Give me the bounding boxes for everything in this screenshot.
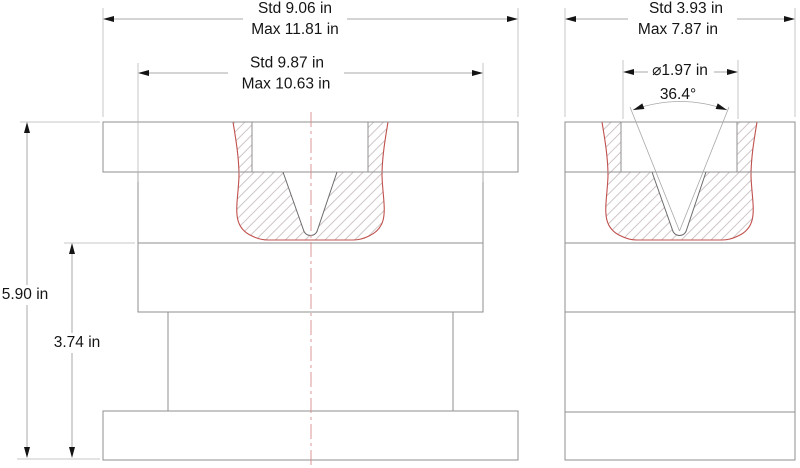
front-die-holder-block bbox=[138, 172, 483, 243]
dim-text-die-opening: ⌀1.97 in bbox=[652, 62, 708, 79]
front-view bbox=[103, 112, 518, 466]
dim-text-side-overall-std: Std 3.93 in bbox=[649, 0, 723, 17]
front-base-block bbox=[103, 411, 518, 460]
arrowhead bbox=[716, 103, 727, 110]
arrowhead bbox=[633, 103, 644, 110]
front-middle-block bbox=[138, 243, 483, 312]
arrowhead bbox=[69, 243, 75, 254]
dim-text-front-overall-std: Std 9.06 in bbox=[258, 0, 332, 17]
dim-text-upper-body-height: 3.74 in bbox=[54, 334, 101, 351]
arrowhead bbox=[784, 16, 795, 22]
dim-text-front-body-std: Std 9.87 in bbox=[250, 55, 324, 72]
arrowhead bbox=[138, 70, 149, 76]
drawing-canvas: Std 9.06 in Max 11.81 in Std 9.87 in Max… bbox=[0, 0, 800, 468]
side-view bbox=[565, 122, 795, 460]
arrowhead bbox=[727, 69, 738, 75]
front-neck-block bbox=[168, 312, 453, 411]
dim-text-vee-angle: 36.4° bbox=[660, 86, 696, 103]
dim-text-overall-height: 5.90 in bbox=[2, 286, 49, 303]
arrowhead bbox=[472, 70, 483, 76]
arrowhead bbox=[103, 16, 114, 22]
dim-text-front-body-max: Max 10.63 in bbox=[242, 76, 331, 93]
arrowhead bbox=[24, 122, 30, 133]
arrowhead bbox=[507, 16, 518, 22]
side-body bbox=[565, 122, 795, 460]
front-die-section-hatch bbox=[233, 122, 388, 240]
arrowhead bbox=[565, 16, 576, 22]
technical-drawing-page: Std 9.06 in Max 11.81 in Std 9.87 in Max… bbox=[0, 0, 800, 468]
dim-text-front-overall-max: Max 11.81 in bbox=[251, 21, 339, 38]
arrowhead bbox=[623, 69, 634, 75]
dim-text-side-overall-max: Max 7.87 in bbox=[638, 21, 718, 38]
arrowhead bbox=[69, 447, 75, 458]
dimension-annotations: Std 9.06 in Max 11.81 in Std 9.87 in Max… bbox=[2, 0, 795, 459]
arrowhead bbox=[24, 447, 30, 458]
side-die-section-hatch bbox=[602, 122, 757, 240]
front-top-flange bbox=[103, 122, 518, 172]
